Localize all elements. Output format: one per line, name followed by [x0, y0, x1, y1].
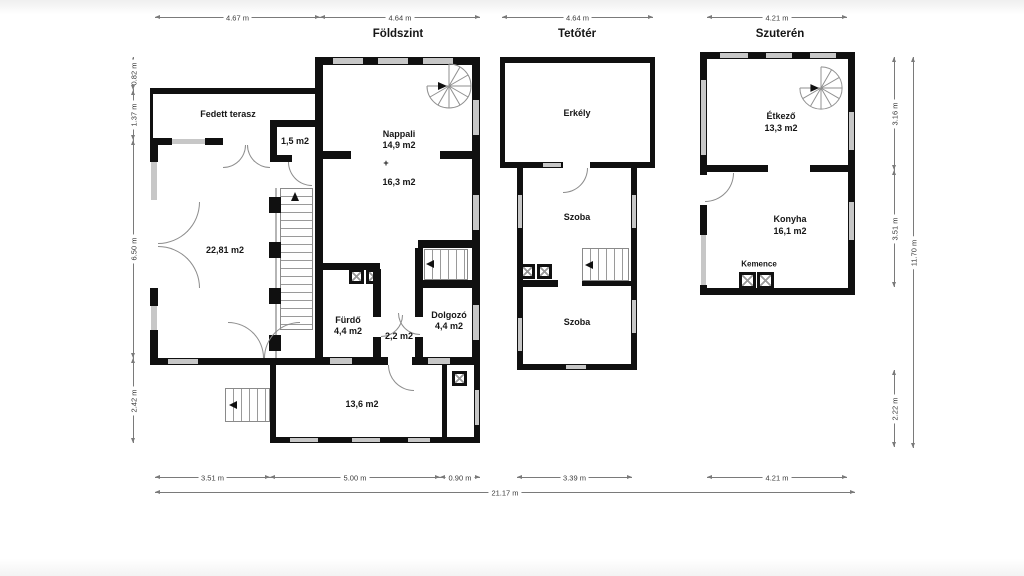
dimension-label: 1.37 m — [130, 101, 139, 130]
dimension-label: 11.70 m — [910, 236, 919, 269]
dimension-line: 6.50 m — [133, 140, 134, 358]
window — [518, 318, 522, 351]
window — [720, 53, 748, 58]
dimension-line: 4.67 m — [155, 17, 320, 18]
wall — [440, 151, 480, 159]
room-label-szoba-felso: Szoba — [564, 212, 591, 222]
washer-fixture — [349, 269, 364, 284]
column — [269, 197, 281, 213]
window — [701, 235, 706, 285]
room-label-etkezo: Étkező — [766, 111, 795, 121]
dimension-line: 2.42 m — [133, 358, 134, 443]
staircase — [280, 188, 313, 330]
wall — [418, 240, 480, 248]
room-area-etkezo: 13,3 m2 — [764, 123, 797, 133]
window — [408, 438, 430, 442]
dimension-line: 0.82 m — [133, 57, 134, 90]
floor-plan-canvas: Földszint Tetőtér Szuterén 4.67 m 4.64 m… — [0, 0, 1024, 576]
dimension-label: 3.51 m — [891, 214, 900, 243]
window — [849, 112, 854, 150]
wall — [205, 138, 223, 145]
room-label-erkely: Erkély — [563, 108, 590, 118]
dimension-line: 0.90 m — [440, 477, 480, 478]
door-arc — [288, 162, 312, 186]
fixture — [452, 371, 467, 386]
window — [543, 163, 561, 167]
room-label-kemence: Kemence — [741, 260, 777, 269]
dimension-line: 4.21 m — [707, 477, 847, 478]
wall — [373, 270, 381, 317]
door-arc — [563, 168, 588, 193]
oven-fixture — [757, 272, 774, 289]
room-area-nagyszoba: 22,81 m2 — [206, 245, 244, 255]
room-label-furdo: Fürdő — [335, 315, 361, 325]
door-arc — [158, 202, 200, 244]
room-area-also: 13,6 m2 — [345, 399, 378, 409]
dimension-label: 6.50 m — [130, 235, 139, 264]
window — [168, 359, 198, 364]
dimension-line: 3.51 m — [894, 170, 895, 287]
window — [290, 438, 318, 442]
room-area-plus: + — [383, 158, 388, 168]
fixture — [537, 264, 552, 279]
dimension-line: 4.21 m — [707, 17, 847, 18]
window — [428, 358, 450, 364]
dimension-line: 11.70 m — [913, 57, 914, 448]
plan-title-foldszint: Földszint — [373, 28, 423, 40]
wall — [500, 57, 505, 168]
plan-title-szuteren: Szuterén — [756, 28, 805, 40]
dimension-line: 3.39 m — [517, 477, 632, 478]
dimension-line: 1.37 m — [133, 90, 134, 140]
window — [378, 58, 408, 64]
dimension-line: 5.00 m — [270, 477, 440, 478]
room-label-nappali: Nappali — [383, 129, 416, 139]
dimension-label: 0.82 m — [130, 59, 139, 88]
window — [766, 53, 792, 58]
window — [810, 53, 836, 58]
wall — [500, 57, 655, 63]
wall — [415, 280, 480, 288]
wall — [270, 365, 276, 443]
room-label-dolgozo: Dolgozó — [431, 310, 467, 320]
dimension-label: 4.64 m — [563, 14, 592, 23]
window — [172, 139, 205, 144]
wall — [315, 57, 323, 365]
window — [473, 195, 479, 230]
plan-title-tetoter: Tetőtér — [558, 28, 596, 40]
wall — [442, 365, 447, 437]
wall — [517, 280, 558, 287]
dimension-label: 2.42 m — [130, 386, 139, 415]
stair-direction-arrow — [229, 401, 237, 409]
column — [269, 288, 281, 304]
window — [151, 306, 157, 330]
spiral-staircase — [424, 61, 474, 111]
room-area-dolgozo: 4,4 m2 — [435, 321, 463, 331]
stair-direction-arrow — [426, 260, 434, 268]
window — [849, 202, 854, 240]
door-arc — [388, 365, 414, 391]
window — [518, 195, 522, 228]
dimension-label: 3.51 m — [198, 474, 227, 483]
door-arc — [158, 246, 200, 288]
wall — [700, 205, 707, 235]
door-arc — [264, 322, 300, 358]
column — [269, 242, 281, 258]
dimension-line: 2.22 m — [894, 370, 895, 447]
wall — [590, 162, 655, 168]
spiral-staircase — [796, 64, 846, 112]
room-area-furdo: 4,4 m2 — [334, 326, 362, 336]
window — [151, 162, 157, 200]
window — [475, 390, 479, 425]
wall — [415, 337, 423, 358]
window — [330, 358, 352, 364]
dimension-label: 4.21 m — [763, 474, 792, 483]
room-label-konyha: Konyha — [773, 214, 806, 224]
fixture — [520, 264, 535, 279]
window — [566, 365, 586, 369]
wall — [810, 165, 855, 172]
room-area-konyha: 16,1 m2 — [773, 226, 806, 236]
room-label-fedett-terasz: Fedett terasz — [200, 109, 256, 119]
dimension-line: 3.51 m — [155, 477, 270, 478]
dimension-label: 4.21 m — [763, 14, 792, 23]
room-area-kozlekedo: 2,2 m2 — [385, 331, 413, 341]
dimension-line: 4.64 m — [320, 17, 480, 18]
room-area-nappali-2: 16,3 m2 — [382, 177, 415, 187]
wall — [373, 337, 381, 358]
dimension-label: 5.00 m — [341, 474, 370, 483]
door-arc — [228, 322, 264, 358]
dimension-label: 3.39 m — [560, 474, 589, 483]
dimension-label: 0.90 m — [446, 474, 475, 483]
dimension-label: 21.17 m — [488, 489, 521, 498]
wall — [700, 165, 768, 172]
wall — [270, 155, 292, 162]
door-arc — [223, 145, 246, 168]
wall — [848, 52, 855, 295]
stair-direction-arrow — [585, 261, 593, 269]
wall — [650, 57, 655, 168]
oven-fixture — [739, 272, 756, 289]
wall — [150, 288, 158, 306]
wall — [315, 151, 351, 159]
wall — [270, 120, 317, 127]
door-arc — [705, 173, 734, 202]
dimension-label: 4.67 m — [223, 14, 252, 23]
dimension-line: 21.17 m — [155, 492, 855, 493]
wall — [150, 88, 153, 142]
room-label-szoba-also: Szoba — [564, 317, 591, 327]
room-area-nappali-1: 14,9 m2 — [382, 140, 415, 150]
window — [333, 58, 363, 64]
window — [473, 305, 479, 340]
window — [632, 300, 636, 333]
dimension-label: 3.16 m — [891, 99, 900, 128]
dimension-line: 4.64 m — [502, 17, 653, 18]
window — [701, 80, 706, 155]
stair-direction-arrow — [291, 192, 299, 201]
room-area-kamra: 1,5 m2 — [281, 136, 309, 146]
dimension-line: 3.16 m — [894, 57, 895, 170]
window — [352, 438, 380, 442]
wall — [700, 288, 855, 295]
window — [632, 195, 636, 228]
wall — [150, 88, 317, 94]
wall — [150, 142, 158, 162]
door-arc — [247, 145, 270, 168]
dimension-label: 2.22 m — [891, 394, 900, 423]
wall — [582, 281, 637, 286]
dimension-label: 4.64 m — [386, 14, 415, 23]
